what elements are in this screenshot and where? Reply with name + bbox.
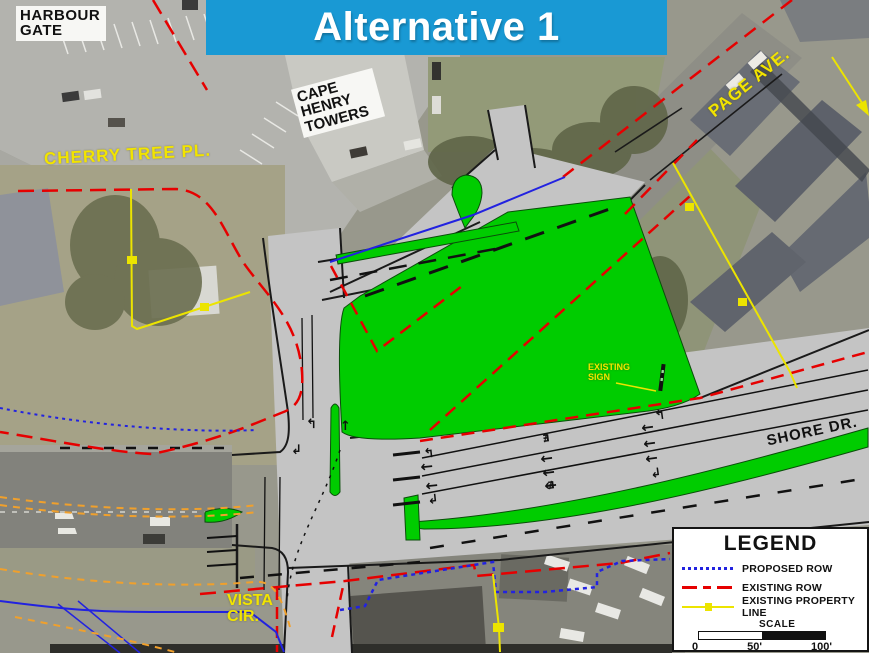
scale-bar-first-half (699, 632, 763, 639)
proposed-row-line-swatch (682, 567, 734, 570)
scale-tick-50: 50' (747, 641, 762, 653)
svg-text:←: ← (644, 448, 659, 468)
legend-box: LEGEND PROPOSED ROW EXISTING ROW EXISTIN… (672, 527, 869, 652)
scale-bar (698, 631, 826, 640)
legend-item-label: EXISTING ROW (742, 582, 822, 594)
page-title: Alternative 1 (313, 5, 560, 50)
legend-item-label: EXISTING PROPERTY LINE (742, 595, 867, 619)
svg-text:↲: ↲ (427, 492, 439, 508)
legend-item-existing-property-line: EXISTING PROPERTY LINE (674, 597, 867, 616)
svg-text:↲: ↲ (291, 443, 302, 458)
existing-row-line-swatch (682, 586, 734, 589)
property-line-marker (705, 603, 712, 611)
label-harbour-gate: HARBOUR GATE (16, 6, 106, 41)
existing-property-line-swatch (682, 606, 734, 608)
scale-tick-labels: 0 50' 100' (692, 641, 832, 653)
svg-text:↰: ↰ (423, 446, 435, 462)
svg-text:↑: ↑ (340, 419, 351, 434)
legend-item-label: PROPOSED ROW (742, 563, 833, 575)
legend-title: LEGEND (674, 532, 867, 556)
svg-text:↲: ↲ (649, 466, 662, 482)
legend-item-proposed-row: PROPOSED ROW (674, 559, 867, 578)
svg-text:↰: ↰ (653, 408, 666, 424)
scale-label: SCALE (759, 619, 867, 630)
title-banner: Alternative 1 (206, 0, 667, 55)
alternative-1-plan-map: ← ← ↰ ↲ ← ← ← ∄ ∄ ← ← ← ↲ ↰ ↰ ↲ ↑ (0, 0, 869, 653)
scale-bar-second-half (763, 632, 826, 639)
label-vista-cir: VISTA CIR. (227, 593, 285, 626)
svg-text:↰: ↰ (306, 417, 317, 432)
label-existing-sign: EXISTING SIGN (588, 362, 644, 383)
scale-tick-100: 100' (811, 641, 832, 653)
scale-tick-0: 0 (692, 641, 698, 653)
